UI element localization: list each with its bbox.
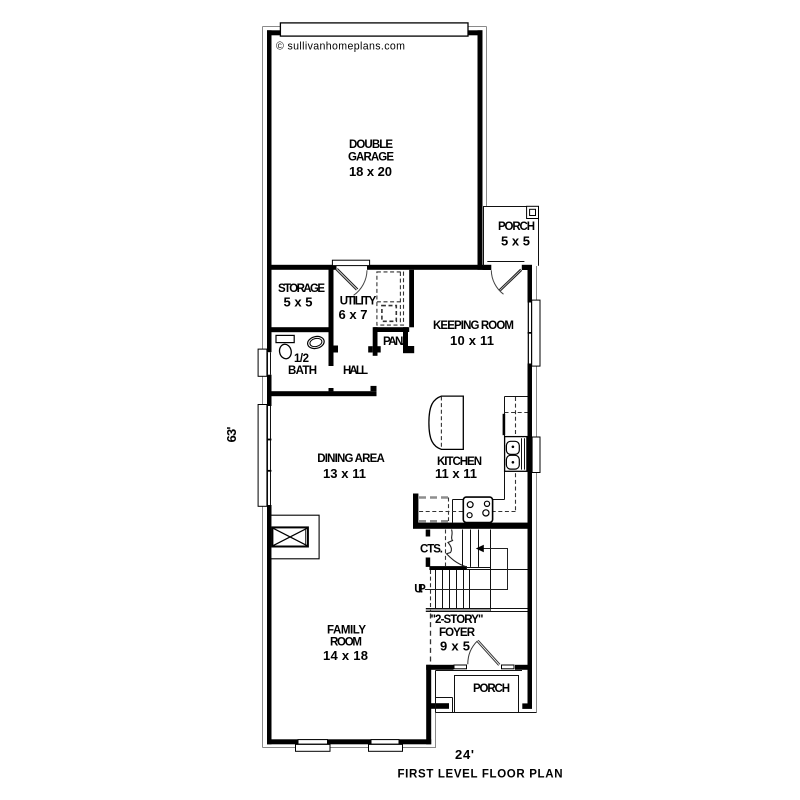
svg-text:DOUBLE: DOUBLE xyxy=(349,139,393,151)
svg-text:ROOM: ROOM xyxy=(330,637,362,649)
svg-text:10 x 11: 10 x 11 xyxy=(450,333,494,348)
svg-text:PORCH: PORCH xyxy=(498,221,535,233)
svg-text:PORCH: PORCH xyxy=(473,683,510,695)
svg-text:UTILITY: UTILITY xyxy=(340,296,377,308)
svg-text:5 x 5: 5 x 5 xyxy=(501,234,530,249)
svg-text:STORAGE: STORAGE xyxy=(278,283,325,295)
svg-text:"2-STORY": "2-STORY" xyxy=(431,614,484,626)
svg-text:DINING AREA: DINING AREA xyxy=(317,453,385,465)
svg-text:FOYER: FOYER xyxy=(439,627,476,639)
svg-text:PAN.: PAN. xyxy=(383,336,405,348)
svg-text:GARAGE: GARAGE xyxy=(348,152,394,164)
svg-text:6 x 7: 6 x 7 xyxy=(339,307,368,322)
svg-text:BATH: BATH xyxy=(288,365,317,377)
svg-text:18 x 20: 18 x 20 xyxy=(349,164,392,179)
svg-text:KEEPING ROOM: KEEPING ROOM xyxy=(433,320,514,332)
svg-text:1/2: 1/2 xyxy=(294,353,309,365)
svg-text:HALL: HALL xyxy=(343,365,368,377)
svg-text:CTS.: CTS. xyxy=(420,544,443,556)
svg-text:11 x 11: 11 x 11 xyxy=(435,466,477,481)
svg-text:FAMILY: FAMILY xyxy=(327,625,366,637)
svg-text:UP.: UP. xyxy=(414,584,426,596)
svg-text:5 x 5: 5 x 5 xyxy=(284,295,313,310)
svg-text:63': 63' xyxy=(224,427,239,443)
svg-text:9 x 5: 9 x 5 xyxy=(440,639,470,654)
svg-text:© sullivanhomeplans.com: © sullivanhomeplans.com xyxy=(276,41,405,53)
svg-text:24': 24' xyxy=(455,747,474,762)
svg-text:FIRST LEVEL FLOOR PLAN: FIRST LEVEL FLOOR PLAN xyxy=(398,769,563,781)
svg-text:13 x 11: 13 x 11 xyxy=(323,466,366,481)
svg-text:14 x 18: 14 x 18 xyxy=(323,648,368,663)
